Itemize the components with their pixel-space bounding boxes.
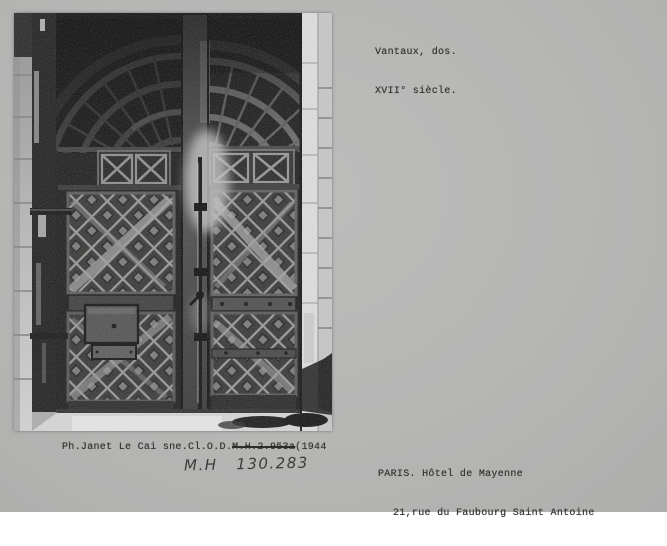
credit-struck-number: M.H.2.953a (232, 442, 295, 453)
film-grain-overlay (14, 13, 332, 431)
photograph-door-vantaux (14, 13, 332, 431)
handwritten-reference: M.H 130.283 (184, 454, 309, 475)
credit-prefix: Ph.Janet Le Cai sne.Cl.O.D. (62, 442, 232, 453)
door-photo-svg (14, 13, 332, 431)
caption-classification: Vantaux, dos. XVII° siècle. (375, 20, 457, 124)
archive-card: Vantaux, dos. XVII° siècle. Ph.Janet Le … (0, 0, 667, 512)
caption-century: XVII° siècle. (375, 85, 457, 98)
caption-location: PARIS. Hôtel de Mayenne 21,rue du Faubou… (378, 442, 595, 546)
credit-suffix: (1944 (295, 442, 327, 453)
caption-credit: Ph.Janet Le Cai sne.Cl.O.D.M.H.2.953a(19… (62, 441, 327, 454)
location-city-building: PARIS. Hôtel de Mayenne (378, 468, 595, 481)
location-street: 21,rue du Faubourg Saint Antoine (378, 507, 595, 520)
caption-subject: Vantaux, dos. (375, 46, 457, 59)
